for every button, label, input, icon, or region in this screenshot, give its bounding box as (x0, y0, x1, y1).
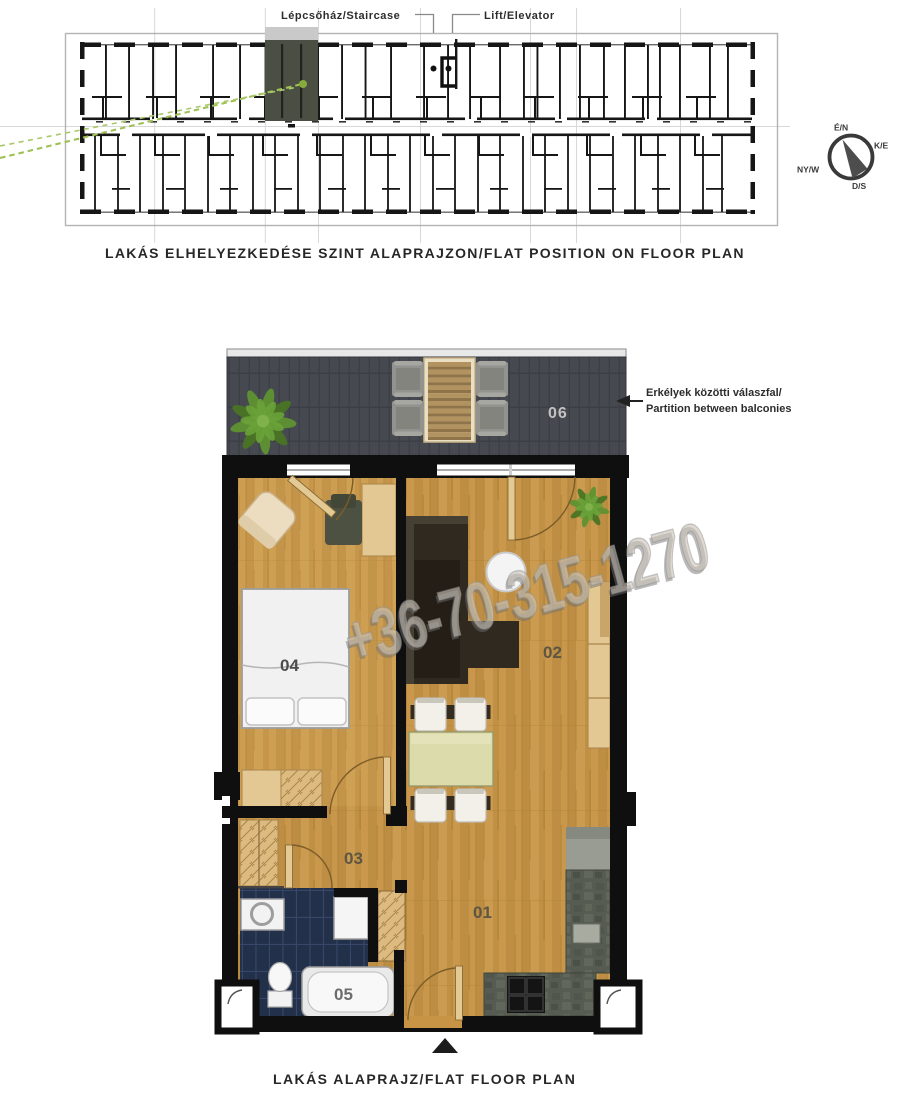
svg-text:05: 05 (334, 985, 353, 1004)
svg-text:Erkélyek közötti válaszfal/: Erkélyek közötti válaszfal/ (646, 387, 782, 399)
svg-text:Partition between balconies: Partition between balconies (646, 403, 791, 415)
svg-text:03: 03 (344, 849, 363, 868)
svg-text:Lift/Elevator: Lift/Elevator (484, 10, 555, 22)
svg-text:LAKÁS ELHELYEZKEDÉSE SZINT ALA: LAKÁS ELHELYEZKEDÉSE SZINT ALAPRAJZON/FL… (105, 245, 745, 261)
svg-text:É/N: É/N (834, 123, 848, 133)
svg-text:NY/W: NY/W (797, 165, 820, 175)
svg-text:06: 06 (548, 405, 568, 422)
svg-text:02: 02 (543, 643, 562, 662)
svg-text:04: 04 (280, 656, 299, 675)
svg-text:D/S: D/S (852, 181, 867, 191)
svg-text:01: 01 (473, 903, 492, 922)
svg-text:K/E: K/E (874, 141, 889, 151)
svg-text:LAKÁS ALAPRAJZ/FLAT FLOOR PLAN: LAKÁS ALAPRAJZ/FLAT FLOOR PLAN (273, 1071, 576, 1087)
svg-text:Lépcsőház/Staircase: Lépcsőház/Staircase (281, 10, 400, 22)
